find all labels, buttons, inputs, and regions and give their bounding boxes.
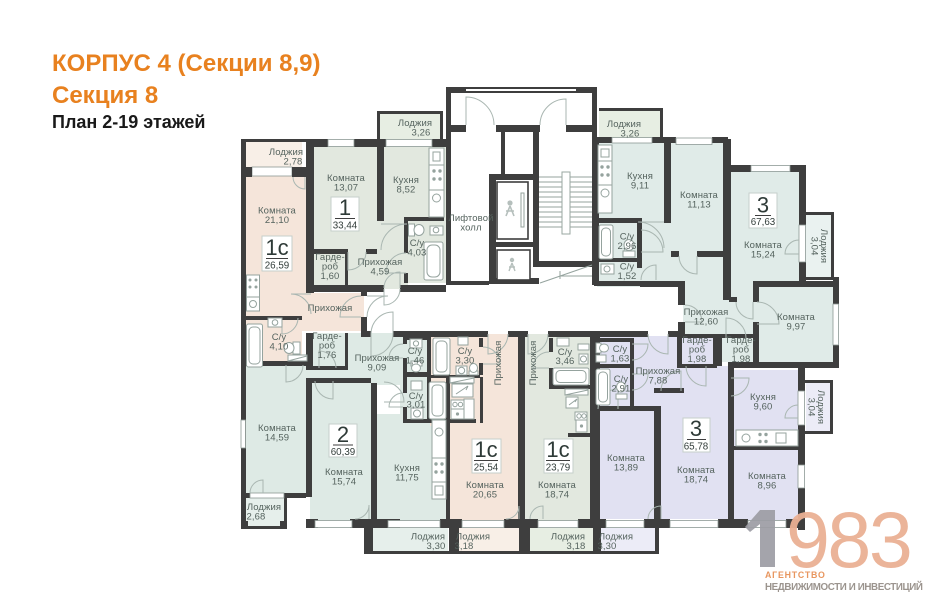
svg-text:1,98: 1,98 — [688, 354, 707, 365]
svg-text:25,54: 25,54 — [474, 463, 499, 474]
svg-text:18,74: 18,74 — [545, 490, 569, 501]
svg-text:3,26: 3,26 — [621, 129, 640, 140]
svg-text:3,30: 3,30 — [456, 356, 475, 367]
svg-text:12,60: 12,60 — [694, 317, 718, 328]
svg-text:15,74: 15,74 — [332, 477, 356, 488]
svg-text:3,26: 3,26 — [412, 128, 431, 139]
svg-text:9,11: 9,11 — [631, 181, 649, 192]
svg-text:1с: 1с — [474, 437, 497, 462]
svg-text:2,68: 2,68 — [247, 512, 266, 523]
svg-text:23,79: 23,79 — [546, 463, 571, 474]
svg-text:1,46: 1,46 — [406, 356, 425, 367]
svg-text:33,44: 33,44 — [333, 221, 358, 232]
svg-text:4,59: 4,59 — [371, 267, 390, 278]
svg-text:НЕДВИЖИМОСТИ И ИНВЕСТИЦИЙ: НЕДВИЖИМОСТИ И ИНВЕСТИЦИЙ — [765, 581, 923, 593]
svg-text:3,18: 3,18 — [567, 541, 586, 552]
svg-text:1с: 1с — [265, 235, 288, 260]
svg-text:18,74: 18,74 — [684, 475, 708, 486]
svg-text:1,98: 1,98 — [732, 354, 751, 365]
svg-text:9,09: 9,09 — [368, 363, 387, 374]
svg-text:3: 3 — [690, 416, 702, 441]
svg-text:2,91: 2,91 — [612, 384, 631, 395]
svg-text:65,78: 65,78 — [684, 442, 709, 453]
svg-text:1с: 1с — [546, 437, 569, 462]
svg-text:Прихожая: Прихожая — [528, 341, 539, 386]
svg-text:1,63: 1,63 — [611, 354, 630, 365]
svg-text:13,07: 13,07 — [334, 183, 358, 194]
svg-text:60,39: 60,39 — [331, 447, 356, 458]
svg-text:1,60: 1,60 — [321, 271, 340, 282]
svg-text:20,65: 20,65 — [473, 490, 497, 501]
svg-text:15,24: 15,24 — [751, 250, 775, 261]
svg-text:1,52: 1,52 — [618, 271, 637, 282]
svg-text:4,03: 4,03 — [408, 248, 427, 259]
svg-text:67,63: 67,63 — [751, 217, 776, 228]
svg-text:1: 1 — [339, 195, 351, 220]
svg-text:Прихожая: Прихожая — [493, 341, 504, 386]
svg-text:9,60: 9,60 — [754, 402, 773, 413]
svg-text:11,75: 11,75 — [395, 473, 419, 484]
svg-text:7,88: 7,88 — [649, 376, 668, 387]
svg-text:3,46: 3,46 — [556, 356, 575, 367]
svg-text:1,76: 1,76 — [318, 350, 337, 361]
svg-text:3,30: 3,30 — [427, 541, 446, 552]
svg-text:11,13: 11,13 — [687, 200, 711, 211]
svg-text:Прихожая: Прихожая — [308, 303, 353, 314]
svg-text:3,30: 3,30 — [598, 541, 617, 552]
svg-text:26,59: 26,59 — [265, 261, 290, 272]
svg-text:3,04: 3,04 — [806, 398, 817, 417]
svg-text:3,18: 3,18 — [455, 541, 474, 552]
svg-text:21,10: 21,10 — [265, 215, 289, 226]
svg-text:8,52: 8,52 — [397, 185, 416, 196]
svg-text:14,59: 14,59 — [265, 433, 289, 444]
svg-text:2: 2 — [337, 422, 349, 447]
svg-text:2,78: 2,78 — [284, 157, 303, 168]
svg-text:9,97: 9,97 — [787, 322, 806, 333]
svg-text:холл: холл — [460, 223, 481, 234]
svg-text:3,01: 3,01 — [407, 400, 426, 411]
svg-text:3: 3 — [757, 193, 769, 218]
svg-text:13,89: 13,89 — [614, 463, 638, 474]
svg-text:АГЕНТСТВО: АГЕНТСТВО — [765, 570, 826, 580]
svg-text:4,10: 4,10 — [270, 342, 289, 353]
svg-text:8,96: 8,96 — [758, 481, 777, 492]
svg-text:3,04: 3,04 — [809, 237, 820, 256]
svg-text:2,96: 2,96 — [618, 241, 637, 252]
